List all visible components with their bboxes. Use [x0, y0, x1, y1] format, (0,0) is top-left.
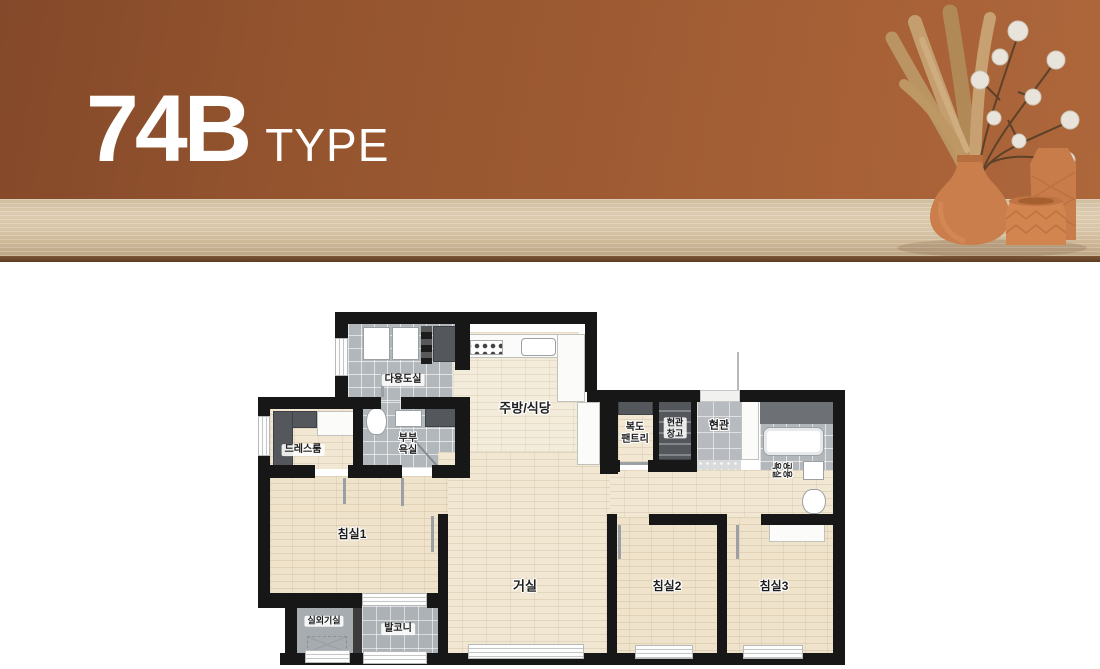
master-bath-door-leaf [401, 478, 404, 506]
bedroom3-window [743, 645, 803, 659]
wall [648, 460, 697, 472]
wall [427, 593, 438, 608]
bedroom1-label: 침실1 [338, 527, 367, 541]
bedroom3-label: 침실3 [760, 579, 789, 593]
living-room-label: 거실 [513, 578, 537, 593]
ac-room-label: 실외기실 [304, 616, 343, 627]
common-toilet-icon [802, 489, 826, 514]
floor-plan: 다용도실 주방/식당 드레스룸 부부 욕실 복도 팬트리 현관 창고 현관 공용… [255, 312, 845, 665]
dressroom-label: 드레스룸 [282, 444, 325, 456]
common-bath-label: 공용 욕실 [771, 462, 792, 479]
small-faceted-vase [1006, 196, 1066, 245]
master-sink-icon [395, 410, 422, 427]
bathtub-icon [763, 427, 824, 456]
unit-type-number: 74B [86, 82, 248, 177]
wall [353, 400, 363, 465]
wall [438, 514, 448, 654]
main-vase [930, 155, 1010, 245]
master-bath-label: 부부 욕실 [399, 433, 417, 457]
wall [432, 465, 470, 478]
wall [258, 593, 362, 608]
bedroom3-door-leaf [736, 525, 739, 559]
bedroom2-window [635, 645, 693, 659]
master-toilet-icon [366, 408, 387, 435]
balcony-door-window [362, 593, 427, 606]
wall [270, 465, 315, 478]
ac-room-window [305, 650, 350, 663]
washer-icon [363, 327, 390, 360]
bedroom2-label: 침실2 [653, 579, 682, 593]
wall [585, 324, 597, 392]
dryer-icon [392, 327, 419, 360]
utility-counter-icon [421, 326, 432, 364]
hero-banner: 74B TYPE [0, 0, 1100, 262]
wardrobe-side [273, 411, 293, 467]
kitchen-label: 주방/식당 [499, 400, 550, 415]
living-window [468, 644, 584, 659]
pantry-door-leaf [620, 462, 648, 465]
balcony-window [363, 651, 427, 664]
dressroom-cabinet [317, 411, 355, 436]
wall [335, 312, 597, 324]
utility-room-label: 다용도실 [382, 374, 425, 386]
common-sink-icon [803, 461, 824, 480]
vase-decor-image [870, 0, 1100, 262]
hallway-floor [600, 470, 833, 517]
pantry-label: 복도 팬트리 [621, 422, 649, 446]
wall [353, 608, 362, 653]
wall [653, 398, 659, 462]
utility-window [335, 338, 348, 376]
kitchen-counter-corner [557, 334, 585, 402]
wall [649, 514, 727, 525]
entrance-closet [741, 400, 759, 460]
wall [348, 465, 402, 478]
wall [740, 390, 845, 402]
kitchen-sink-icon [521, 338, 556, 356]
bedroom2-door-leaf [618, 525, 621, 559]
wall [833, 398, 845, 665]
page-title: 74B TYPE [86, 82, 389, 177]
entry-door-opening [700, 390, 740, 402]
wall [600, 460, 620, 472]
utility-cabinet [433, 326, 457, 362]
bedroom3-closet [769, 522, 825, 542]
wall [455, 324, 470, 370]
dressroom-window [258, 416, 270, 456]
wall [691, 398, 697, 462]
entry-door-frame-line [737, 352, 739, 390]
entry-storage-label: 현관 창고 [664, 417, 687, 438]
page: { "hero": { "title": "74B", "subtitle": … [0, 0, 1100, 669]
dressroom-door-leaf [343, 478, 346, 504]
pantry-cabinet [618, 400, 653, 415]
pampas-grass [892, 12, 990, 168]
kitchen-cabinet-column [577, 402, 600, 465]
bedroom1-door-leaf [431, 516, 434, 552]
balcony-label: 발코니 [381, 623, 415, 635]
entrance-label: 현관 [709, 420, 729, 433]
stove-icon [470, 340, 503, 355]
unit-type-word: TYPE [265, 118, 389, 172]
living-room-floor [438, 452, 610, 655]
wall [607, 514, 617, 654]
wall [717, 514, 727, 654]
